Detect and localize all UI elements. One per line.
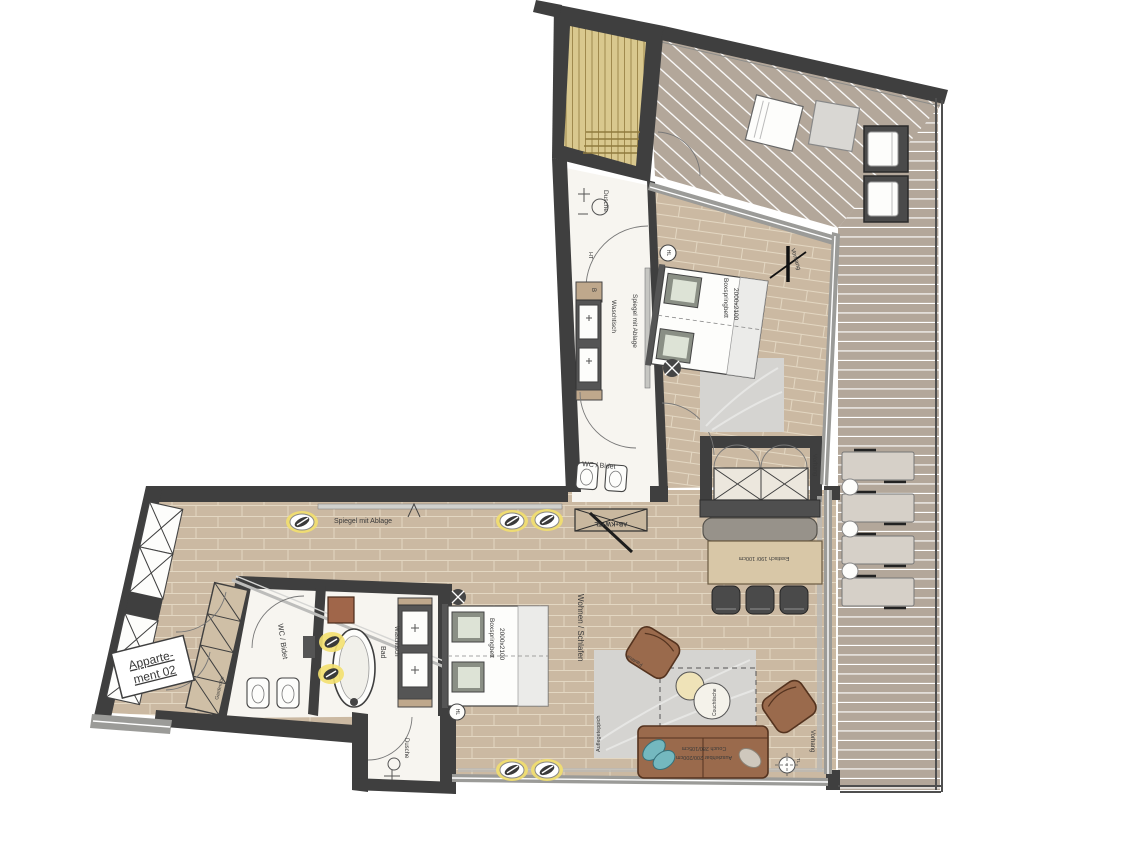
- label-bett2-line2: 2000x2100: [498, 628, 505, 661]
- mirror-upper: [645, 268, 650, 388]
- label-b: B: [590, 288, 596, 292]
- terrace-armchair-1: [864, 126, 908, 172]
- label-bad: Bad: [379, 646, 386, 659]
- label-spiegel-upper: Spiegel mit Ablage: [631, 294, 638, 348]
- vanity-lower: [398, 598, 432, 707]
- sideboard: [700, 500, 820, 541]
- floor-plan-canvas: Apparte- ment 02: [0, 0, 1132, 849]
- label-bett1-line2: 2000x2100: [732, 288, 739, 321]
- label-waschtisch-lower: Waschtisch: [393, 626, 399, 656]
- label-vorhang-2: Vorhang: [811, 454, 818, 477]
- label-couchtische: Couchtische: [712, 688, 718, 716]
- bath-stool: [328, 597, 354, 623]
- label-wohnen-schlafen: Wohnen / Schlafen: [576, 594, 585, 661]
- label-bett1-line1: Boxspringbett: [722, 278, 729, 318]
- label-anschluss: AB+KW+TL: [594, 520, 627, 526]
- label-hl-1: HL: [665, 250, 671, 257]
- label-auflegeteppich: Auflegeteppich: [596, 716, 602, 752]
- floor-plan: Apparte- ment 02: [0, 0, 1132, 849]
- floor-drain-icon: [450, 589, 466, 605]
- label-vorhang-3: Vorhang: [809, 730, 815, 752]
- wall-stub-topleft: [533, 0, 562, 18]
- label-couch-line1: Couch 280/105cm: [681, 745, 726, 751]
- label-hl-2: HL: [454, 709, 460, 716]
- label-dusche-upper: Dusche: [602, 190, 609, 212]
- label-couch-line2: Ausziehbar 200/200cm: [675, 754, 732, 760]
- dining-table: [708, 541, 822, 584]
- label-dusche-lower: Dusche: [403, 738, 409, 759]
- curtain-band-living: [817, 496, 822, 772]
- label-esstisch: Esstisch 190/ 100cm: [738, 555, 789, 561]
- label-waschtisch-upper: Waschtisch: [610, 300, 617, 333]
- label-bett2-line1: Boxspringbett: [488, 618, 495, 658]
- mirror-lower: [318, 504, 562, 509]
- bed-1: [645, 264, 768, 380]
- sofa: [638, 726, 768, 778]
- label-ht: HT: [587, 252, 593, 260]
- terrace-table: [809, 101, 860, 152]
- label-spiegel-lower: Spiegel mit Ablage: [334, 518, 392, 525]
- label-tl: TL: [796, 758, 801, 764]
- dining-chairs: [712, 586, 808, 614]
- terrace-armchair-2: [864, 176, 908, 222]
- floor-drain-icon: [663, 359, 681, 377]
